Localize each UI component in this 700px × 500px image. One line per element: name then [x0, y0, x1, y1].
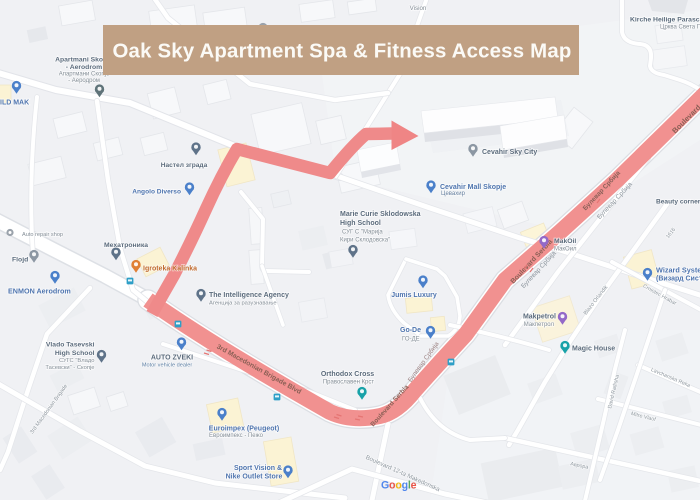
- svg-text:Vision: Vision: [410, 5, 427, 12]
- svg-text:- Аеродром: - Аеродром: [68, 78, 100, 84]
- svg-text:AUTO ZVEKI: AUTO ZVEKI: [151, 355, 193, 362]
- svg-text:High School: High School: [55, 350, 95, 357]
- svg-text:Marie Curie Sklodowska: Marie Curie Sklodowska: [340, 211, 421, 218]
- svg-text:Jumis Luxury: Jumis Luxury: [391, 292, 437, 299]
- svg-text:- Aerodrom: - Aerodrom: [66, 64, 102, 71]
- svg-text:Макпетрол: Макпетрол: [524, 322, 555, 328]
- svg-text:Makpetrol: Makpetrol: [523, 314, 556, 321]
- svg-text:СУГ С "Марија: СУГ С "Марија: [342, 230, 383, 236]
- svg-text:Црква Света Петка: Црква Света Петка: [660, 25, 700, 31]
- svg-text:Апартмани Скопје: Апартмани Скопје: [59, 72, 110, 78]
- svg-text:Orthodox Cross: Orthodox Cross: [321, 371, 374, 378]
- svg-text:Igroteka Kalinka: Igroteka Kalinka: [143, 266, 197, 273]
- svg-text:Magic House: Magic House: [572, 346, 615, 353]
- svg-text:Go-De: Go-De: [400, 327, 421, 334]
- svg-text:Google: Google: [381, 480, 417, 492]
- svg-text:Тасевски" - Скопје: Тасевски" - Скопје: [45, 365, 94, 371]
- svg-text:Cevahir Sky City: Cevahir Sky City: [482, 149, 537, 156]
- svg-text:Oak Sky Apartment Spa & Fitnes: Oak Sky Apartment Spa & Fitness Access M…: [112, 41, 571, 63]
- svg-text:Sport Vision &: Sport Vision &: [234, 465, 282, 472]
- svg-text:МакОил: МакОил: [554, 247, 577, 253]
- svg-text:Православен Крст: Православен Крст: [323, 380, 375, 386]
- svg-text:ENMON Aerodrom: ENMON Aerodrom: [8, 287, 71, 296]
- svg-text:Angolo Diverso: Angolo Diverso: [132, 189, 181, 196]
- svg-text:Auto repair shop: Auto repair shop: [22, 232, 63, 238]
- svg-text:Кири Склодовска": Кири Склодовска": [340, 237, 390, 243]
- svg-text:(Визард Сист: (Визард Сист: [656, 276, 700, 283]
- svg-text:Euroimpex (Peugeot): Euroimpex (Peugeot): [209, 426, 279, 433]
- svg-text:Агенција за разузнавање: Агенција за разузнавање: [209, 301, 277, 307]
- svg-text:High School: High School: [340, 220, 381, 227]
- svg-text:СУГС "Владо: СУГС "Владо: [59, 358, 95, 364]
- svg-text:Настел зграда: Настел зграда: [161, 162, 208, 169]
- svg-text:The Intelligence Agency: The Intelligence Agency: [209, 292, 289, 299]
- svg-text:ГО-ДЕ: ГО-ДЕ: [402, 337, 420, 343]
- svg-text:ILD MAK: ILD MAK: [0, 100, 29, 107]
- svg-text:Cevahir Mall Skopje: Cevahir Mall Skopje: [440, 184, 506, 191]
- svg-text:Kirche Heilige Paraschiva: Kirche Heilige Paraschiva: [630, 17, 700, 24]
- svg-text:Wizard System: Wizard System: [656, 266, 700, 275]
- svg-text:Цевахир: Цевахир: [441, 191, 466, 197]
- svg-text:Motor vehicle dealer: Motor vehicle dealer: [142, 362, 193, 368]
- svg-text:Vlado Tasevski: Vlado Tasevski: [46, 342, 95, 349]
- svg-text:Мехатроника: Мехатроника: [104, 242, 148, 249]
- svg-text:Nike Outlet Store: Nike Outlet Store: [226, 473, 283, 480]
- svg-text:Flojd: Flojd: [12, 257, 28, 264]
- svg-text:Beauty corner: Beauty corner: [656, 199, 700, 206]
- svg-text:MakOil: MakOil: [554, 238, 576, 245]
- svg-text:Евроимпекс - Пежо: Евроимпекс - Пежо: [209, 433, 264, 439]
